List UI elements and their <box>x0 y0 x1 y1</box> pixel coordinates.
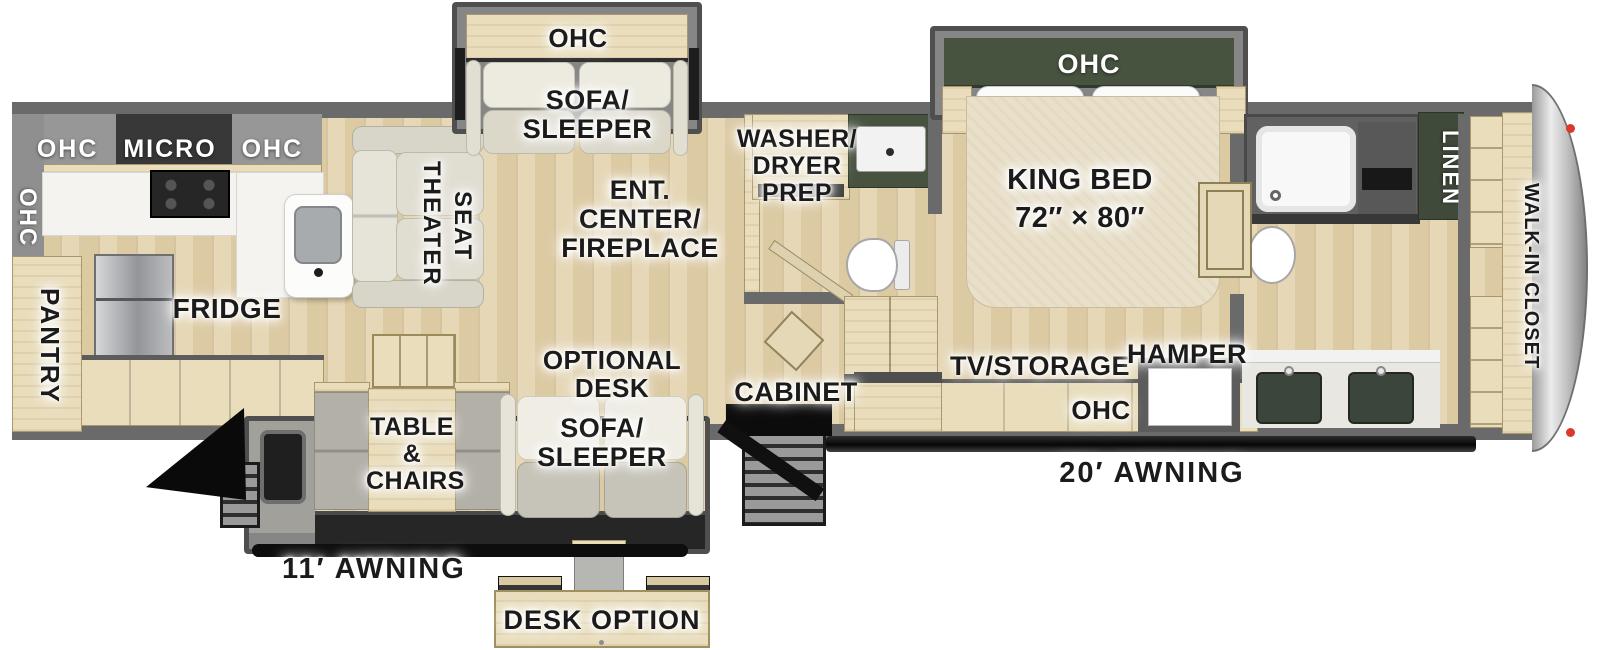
dinette-bench-left-trim <box>314 382 370 392</box>
label-wd-line3: PREP <box>762 179 832 207</box>
label-fridge: FRIDGE <box>168 294 286 324</box>
sofa-slide-window-left <box>455 48 465 120</box>
label-washer-dryer-prep: WASHER/ DRYER PREP <box>712 126 882 207</box>
label-walk-in-closet: WALK-IN CLOSET <box>1505 132 1541 420</box>
label-seat: SEAT <box>444 170 475 282</box>
label-sofa-sleeper-top: SOFA/ SLEEPER <box>495 86 680 144</box>
vanity-sink-right <box>1348 372 1414 424</box>
label-ent-line3: FIREPLACE <box>561 233 719 263</box>
label-sofa-sleeper-bottom: SOFA/ SLEEPER <box>512 414 692 472</box>
label-table-line1: TABLE <box>370 413 454 441</box>
desk-option-knob <box>599 640 604 645</box>
sofa-top-arm-left <box>466 60 481 156</box>
bedroom-steps <box>844 296 938 378</box>
vanity-sink-left <box>1256 372 1322 424</box>
label-optional-line2: DESK <box>575 373 649 403</box>
vanity-faucet-left <box>1284 366 1294 376</box>
label-sofa-top-line1: SOFA/ <box>546 85 630 115</box>
label-wd-line1: WASHER/ <box>737 125 857 153</box>
sofa-slide-window-right <box>689 48 699 120</box>
hamper-bin <box>1148 368 1232 426</box>
cap-marker-top <box>1566 124 1575 133</box>
fridge <box>94 254 174 366</box>
label-sofa-top-line2: SLEEPER <box>523 114 653 144</box>
label-ent-center-fireplace: ENT. CENTER/ FIREPLACE <box>545 176 735 263</box>
label-optional-line1: OPTIONAL <box>543 345 681 375</box>
label-ohc-bed-slide: OHC <box>1029 50 1149 78</box>
label-linen: LINEN <box>1420 126 1462 210</box>
floorplan-canvas: OHC MICRO OHC OHC PANTRY FRIDGE THEATER … <box>0 0 1600 650</box>
label-ohc-sofa-slide: OHC <box>518 24 638 52</box>
label-theater: THEATER <box>413 148 444 300</box>
label-awning-20: 20′ AWNING <box>1056 458 1248 489</box>
label-king-bed-line2: 72″ × 80″ <box>1015 202 1145 234</box>
shower-side-shelf <box>1362 168 1412 190</box>
dinette-bench-right-trim <box>454 382 510 392</box>
label-pantry: PANTRY <box>28 266 64 426</box>
label-sofa-bottom-line2: SLEEPER <box>537 442 667 472</box>
theater-seat-back <box>352 150 398 282</box>
vanity-faucet-right <box>1376 366 1386 376</box>
closet-shelves-top <box>1470 116 1504 248</box>
nightstand-right <box>1216 86 1246 134</box>
label-king-bed-line1: KING BED <box>1007 164 1153 196</box>
toilet-rear-bowl <box>1248 226 1296 284</box>
kitchen-lower-cabinet-edge <box>78 355 324 360</box>
label-table-line2: & <box>403 440 422 468</box>
bedroom-steps-seam <box>889 297 891 377</box>
label-optional-desk: OPTIONAL DESK <box>528 346 696 402</box>
label-hamper: HAMPER <box>1117 340 1257 369</box>
entry-cabinet-top <box>854 372 942 383</box>
bedroom-wall-left <box>928 114 942 214</box>
label-ohc-micro-ohc: OHC MICRO OHC <box>24 136 316 162</box>
range-cooktop <box>150 170 230 218</box>
label-ent-line1: ENT. <box>610 175 671 205</box>
label-cabinet: CABINET <box>730 378 862 407</box>
closet-shelves-bottom <box>1470 296 1504 428</box>
label-table-chairs: TABLE & CHAIRS <box>366 414 458 495</box>
label-ent-line2: CENTER/ <box>579 204 701 234</box>
dinette-bench-left <box>314 392 370 510</box>
bedroom-door-leaf <box>1198 182 1252 278</box>
kitchen-faucet <box>314 268 323 277</box>
toilet-mid-bowl <box>846 238 898 292</box>
fridge-door-split <box>96 298 172 301</box>
dinette-hutch <box>372 334 456 388</box>
label-ohc-left-wall: OHC <box>8 168 40 268</box>
awning-rail-right <box>826 436 1476 452</box>
kitchen-sink-basin <box>294 206 342 264</box>
shower-bottom-ledge <box>1244 214 1420 224</box>
label-sofa-bottom-line1: SOFA/ <box>560 413 644 443</box>
shower-drain <box>1270 190 1281 201</box>
bottom-slide-window <box>260 430 306 504</box>
bath-faucet <box>886 148 894 156</box>
label-table-line3: CHAIRS <box>366 467 465 495</box>
label-ohc-bottom: OHC <box>1053 396 1149 424</box>
label-awning-11: 11′ AWNING <box>282 554 447 585</box>
label-king-bed: KING BED 72″ × 80″ <box>978 162 1182 237</box>
label-tv-storage: TV/STORAGE <box>945 352 1135 381</box>
label-desk-option: DESK OPTION <box>494 606 710 635</box>
cap-marker-bottom <box>1566 428 1575 437</box>
label-wd-line2: DRYER <box>752 152 841 180</box>
